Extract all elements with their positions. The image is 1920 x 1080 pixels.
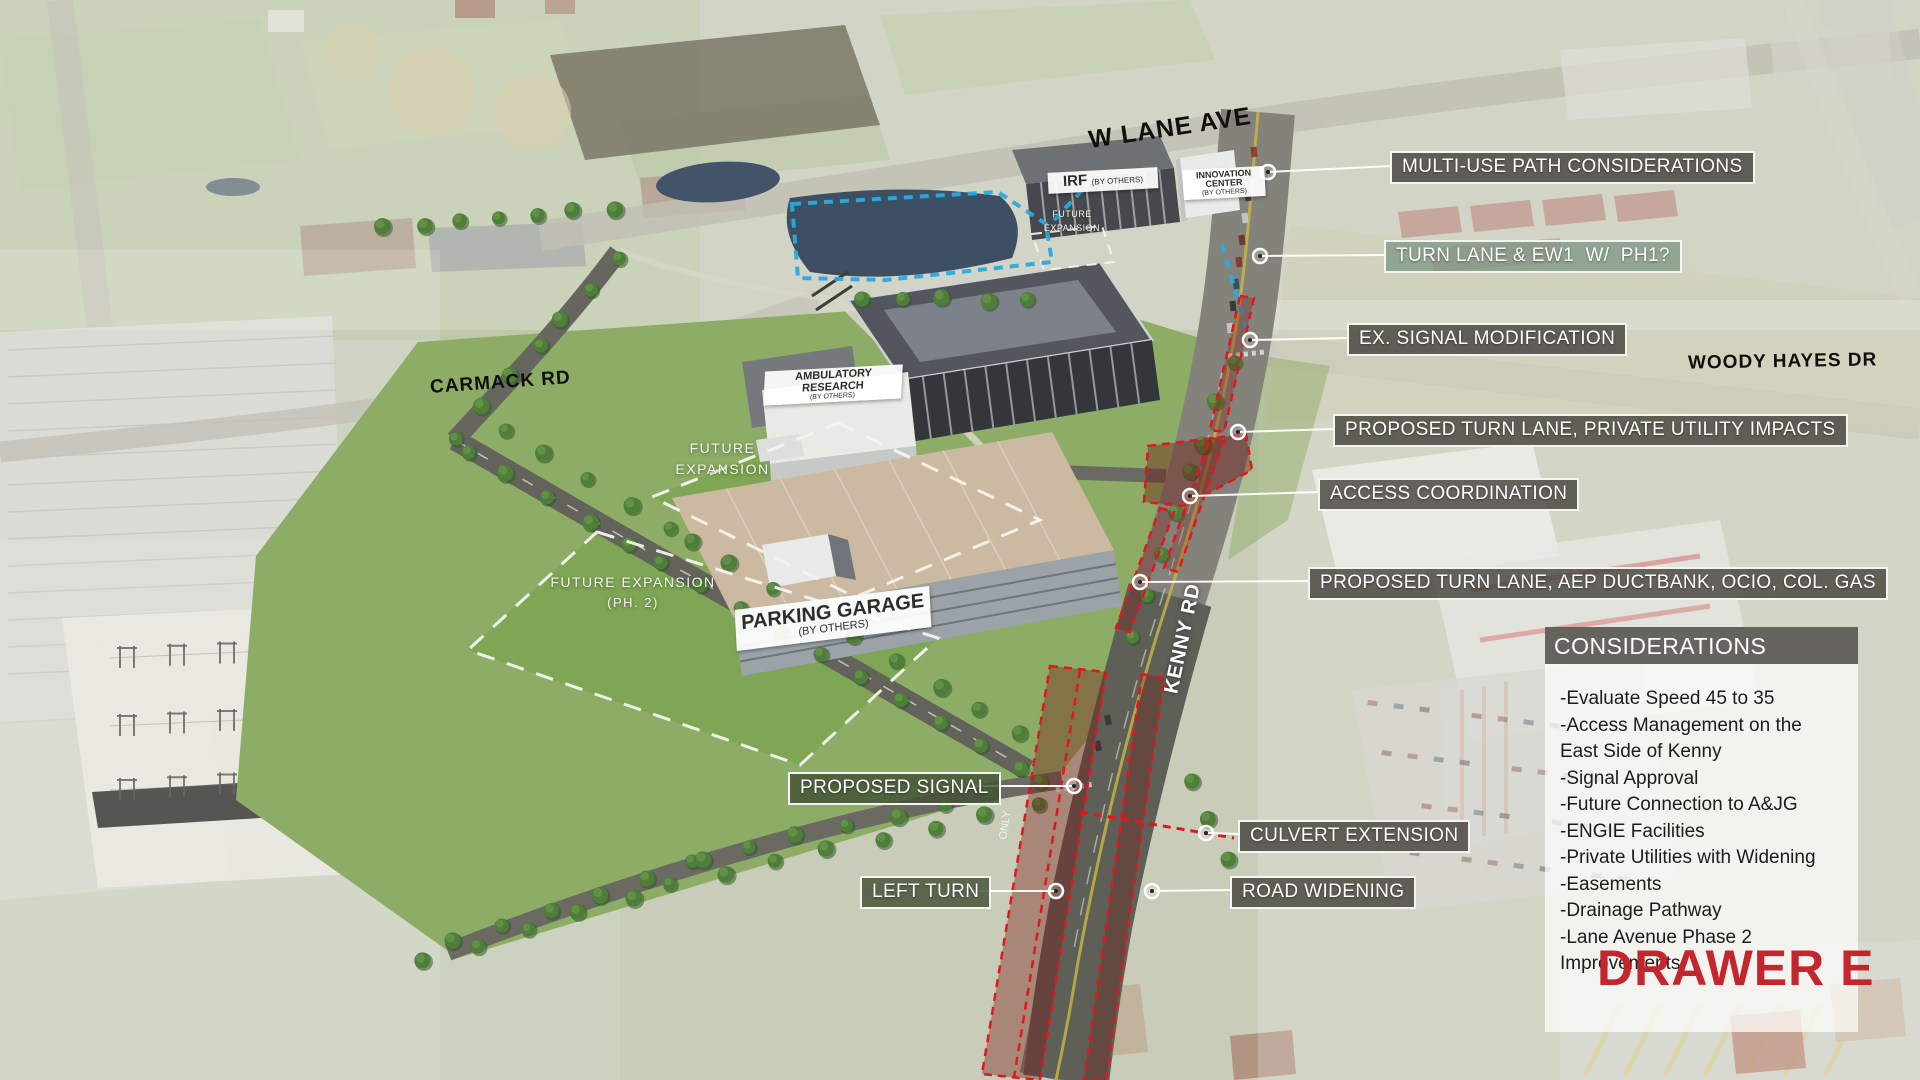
callout-proposed-turn-lane-aep: PROPOSED TURN LANE, AEP DUCTBANK, OCIO, …: [1308, 567, 1888, 600]
innovation-center-sign: INNOVATION CENTER (BY OTHERS): [1182, 166, 1265, 200]
road-label-woody-hayes-dr: WOODY HAYES DR: [1688, 349, 1878, 374]
callout-multi-use-path: MULTI-USE PATH CONSIDERATIONS: [1390, 151, 1755, 184]
considerations-item: East Side of Kenny: [1560, 739, 1852, 766]
considerations-item: -Easements: [1560, 872, 1852, 899]
considerations-item: -Future Connection to A&JG: [1560, 792, 1852, 819]
callout-culvert-extension: CULVERT EXTENSION: [1238, 820, 1470, 853]
future-expansion-irf-label: FUTURE EXPANSION: [1030, 208, 1114, 235]
considerations-item: -Private Utilities with Widening: [1560, 845, 1852, 872]
ambulatory-research-sign: AMBULATORY RESEARCH (BY OTHERS): [763, 364, 903, 406]
future-expansion-center-label: FUTURE EXPANSION: [650, 438, 795, 480]
considerations-item: -Evaluate Speed 45 to 35: [1560, 686, 1852, 713]
callout-proposed-signal: PROPOSED SIGNAL: [788, 772, 1001, 805]
considerations-item: -Signal Approval: [1560, 766, 1852, 793]
site-plan-exhibit: ONLY: [0, 0, 1920, 1080]
callout-ex-signal-modification: EX. SIGNAL MODIFICATION: [1347, 323, 1627, 356]
future-expansion-ph2-label: FUTURE EXPANSION (PH. 2): [548, 572, 718, 613]
considerations-item: -ENGIE Facilities: [1560, 819, 1852, 846]
considerations-item: -Drainage Pathway: [1560, 898, 1852, 925]
callout-turn-lane-ew1: TURN LANE & EW1 W/ PH1?: [1384, 240, 1682, 273]
callout-marker: [1145, 884, 1232, 898]
callout-left-turn: LEFT TURN: [860, 876, 991, 909]
callout-road-widening: ROAD WIDENING: [1230, 876, 1416, 909]
lane-marking-only: ONLY: [997, 809, 1014, 840]
callout-proposed-turn-lane-private-utility: PROPOSED TURN LANE, PRIVATE UTILITY IMPA…: [1333, 414, 1848, 447]
considerations-panel: CONSIDERATIONS -Evaluate Speed 45 to 35-…: [1545, 627, 1858, 1032]
considerations-list: -Evaluate Speed 45 to 35-Access Manageme…: [1545, 664, 1858, 978]
irf-subtitle: (BY OTHERS): [1091, 175, 1143, 187]
irf-title: IRF: [1063, 172, 1088, 190]
drawer-label: DRAWER E: [1597, 939, 1874, 997]
considerations-header: CONSIDERATIONS: [1545, 627, 1858, 664]
considerations-item: -Access Management on the: [1560, 713, 1852, 740]
callout-access-coordination: ACCESS COORDINATION: [1318, 478, 1579, 511]
